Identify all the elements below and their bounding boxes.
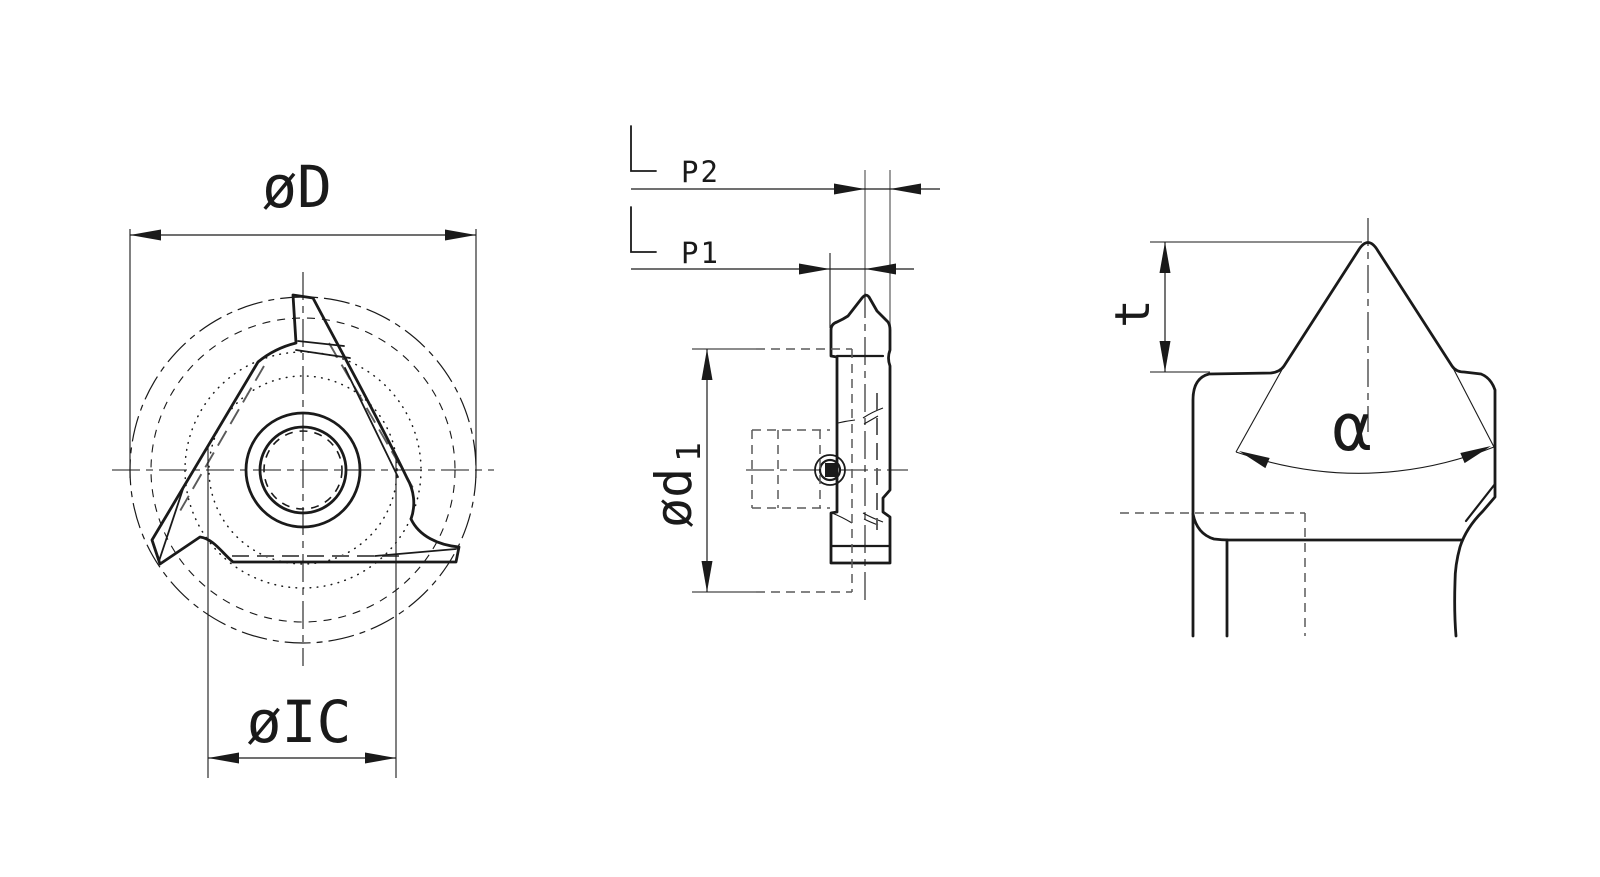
technical-drawing-canvas: øD øIC P2 [0, 0, 1600, 877]
dim-arrow-bottom [1160, 341, 1171, 372]
dimension-tip-angle: α [1236, 366, 1494, 473]
dim-label-od: øD [262, 153, 332, 221]
seat-edge [1193, 514, 1462, 540]
hidden-edge-left [180, 366, 264, 511]
dimension-inscribed-circle: øIC [208, 446, 396, 778]
side-view: P2 P1 [631, 126, 940, 606]
dim-label-oic: øIC [247, 688, 352, 756]
dim-arrow-left [130, 230, 161, 241]
dim-arrow-right [1460, 441, 1493, 463]
dim-label-p1: P1 [681, 236, 720, 270]
surface-curve [838, 420, 855, 423]
dim-label-od1-subscript: 1 [669, 442, 708, 462]
dim-label-p2: P2 [681, 155, 720, 189]
dim-label-t: t [1105, 299, 1161, 328]
dim-arrow-bottom [702, 561, 713, 592]
datum-bracket-icon [631, 126, 656, 171]
tip-facet-bottom-right [375, 549, 456, 556]
datum-bracket-icon [631, 207, 656, 252]
dim-arrow-top [702, 349, 713, 380]
dim-arrow-right [445, 230, 476, 241]
dim-arrow-top [1160, 242, 1171, 273]
hole-core-mark [825, 463, 836, 477]
front-view: øD øIC [112, 153, 494, 778]
insert-side-outline [831, 295, 890, 563]
dim-arrow-right [890, 184, 921, 195]
tip-detail-view: t α [1105, 218, 1495, 636]
drawing-page: øD øIC P2 [0, 0, 1600, 877]
dimension-p2: P2 [631, 126, 940, 195]
angle-extension-left [1236, 366, 1284, 452]
dimension-p1: P1 [631, 207, 914, 275]
dim-arrow-left [799, 264, 830, 275]
surface-curve [863, 513, 883, 522]
dim-arrow-left [208, 753, 239, 764]
dim-label-od1: ød [645, 468, 703, 528]
tip-facet-right [345, 368, 398, 477]
dim-arrow-right [365, 753, 396, 764]
dim-label-alpha: α [1332, 389, 1372, 466]
surface-curve [864, 416, 878, 424]
surface-curve [832, 513, 852, 523]
dim-arrow-left [1237, 446, 1270, 468]
dim-arrow-left [834, 184, 865, 195]
surface-curve [864, 519, 878, 525]
insert-outline [152, 295, 459, 564]
dim-arrow-right [865, 264, 896, 275]
surface-curve [863, 408, 883, 418]
